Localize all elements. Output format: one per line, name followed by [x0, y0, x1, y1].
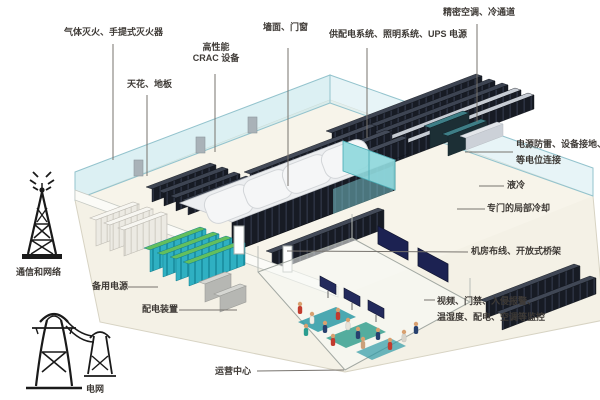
- label-monitoring-line1: 视频、门禁、入侵报警、: [437, 293, 545, 309]
- label-grounding-line1: 电源防雷、设备接地、: [516, 136, 600, 152]
- label-fire-suppression: 气体灭火、手提式灭火器: [64, 27, 163, 38]
- label-monitoring: 视频、门禁、入侵报警、 温湿度、配电、空调等监控: [437, 293, 545, 325]
- label-grounding: 电源防雷、设备接地、 等电位连接: [516, 136, 600, 168]
- label-power-systems: 供配电系统、照明系统、UPS 电源: [329, 29, 467, 40]
- label-monitoring-line2: 温湿度、配电、空调等监控: [437, 309, 545, 325]
- label-power-grid: 电网: [86, 384, 104, 395]
- label-ops-center: 运营中心: [215, 366, 251, 377]
- power-pylons-icon: [26, 314, 116, 388]
- label-crac: 高性能 CRAC 设备: [182, 42, 250, 64]
- label-crac-line1: 高性能: [182, 42, 250, 53]
- label-backup-power: 备用电源: [92, 281, 128, 292]
- label-liquid-cooling: 液冷: [507, 180, 525, 191]
- datacenter-diagram: 气体灭火、手提式灭火器 天花、地板 高性能 CRAC 设备 墙面、门窗 供配电系…: [0, 0, 600, 400]
- label-comm-network: 通信和网络: [16, 267, 61, 278]
- label-walls-doors: 墙面、门窗: [263, 22, 308, 33]
- diagram-scene: [0, 0, 600, 400]
- label-precision-ac: 精密空调、冷通道: [443, 7, 515, 18]
- label-crac-line2: CRAC 设备: [182, 53, 250, 64]
- label-power-distribution: 配电装置: [142, 304, 178, 315]
- label-cabling: 机房布线、开放式桥架: [471, 246, 561, 257]
- label-local-cooling: 专门的局部冷却: [487, 203, 550, 214]
- comm-tower-icon: [22, 172, 62, 259]
- label-grounding-line2: 等电位连接: [516, 152, 600, 168]
- label-ceiling-floor: 天花、地板: [127, 79, 172, 90]
